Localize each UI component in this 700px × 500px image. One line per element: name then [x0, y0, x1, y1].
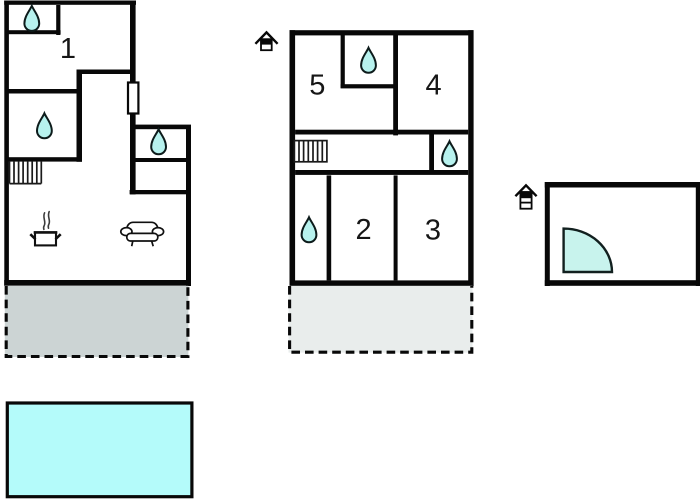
- svg-text:1: 1: [60, 33, 76, 65]
- svg-text:5: 5: [309, 69, 325, 101]
- svg-text:3: 3: [425, 214, 441, 246]
- svg-text:4: 4: [426, 70, 442, 102]
- svg-text:2: 2: [356, 214, 372, 246]
